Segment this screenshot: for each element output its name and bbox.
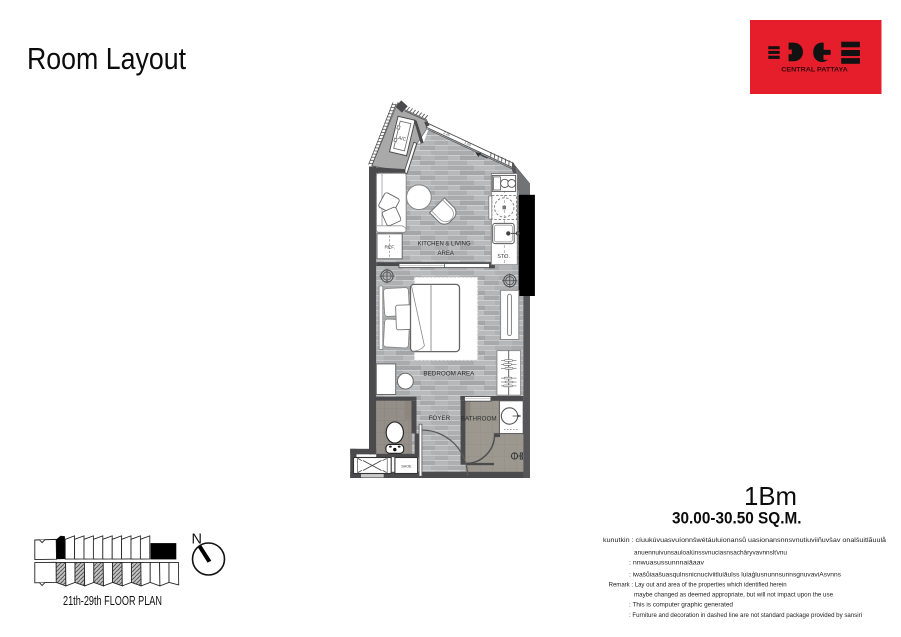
svg-text:STO.: STO. xyxy=(497,254,510,260)
svg-text:: Furniture and decoration in: : Furniture and decoration in dashed lin… xyxy=(629,612,862,619)
svg-text:maybe changed as deemed approp: maybe changed as deemed appropriate, but… xyxy=(634,592,833,599)
svg-text:1Bm: 1Bm xyxy=(744,483,797,511)
svg-text:30.00-30.50 SQ.M.: 30.00-30.50 SQ.M. xyxy=(672,509,802,528)
svg-text:: iwašůiaašuasqulnsnicnuciviit: : iwašůiaašuasqulnsnicnuciviitluiăulss l… xyxy=(629,570,842,578)
svg-text:KITCHEN & LIVING: KITCHEN & LIVING xyxy=(418,241,471,247)
svg-text:21th-29th FLOOR PLAN: 21th-29th FLOOR PLAN xyxy=(63,594,162,608)
svg-text:AREA: AREA xyxy=(438,251,454,257)
svg-text:kunutkin : cíuukúvuasvuíonnšwé: kunutkin : cíuukúvuasvuíonnšwétáuluionan… xyxy=(603,536,886,544)
svg-text:SHOE: SHOE xyxy=(401,464,412,468)
svg-text:Room Layout: Room Layout xyxy=(27,41,186,76)
svg-text:REF.: REF. xyxy=(384,245,395,251)
svg-text:: nnwuasussunnnaiăaav: : nnwuasussunnnaiăaav xyxy=(629,560,705,567)
svg-text:BEDROOM AREA: BEDROOM AREA xyxy=(423,371,474,377)
svg-text:CENTRAL PATTAYA: CENTRAL PATTAYA xyxy=(781,67,848,74)
svg-text:anuennuivunsauloalúnssvnuciasn: anuennuivunsauloalúnssvnuciasnsachāryvav… xyxy=(634,549,787,556)
svg-text:: This is computer graphic gen: : This is computer graphic generated xyxy=(629,602,733,609)
svg-text:Remark : Lay out and area of t: Remark : Lay out and area of the propert… xyxy=(609,581,787,588)
svg-text:BATHROOM: BATHROOM xyxy=(461,417,497,423)
svg-text:FOYER: FOYER xyxy=(429,416,451,422)
